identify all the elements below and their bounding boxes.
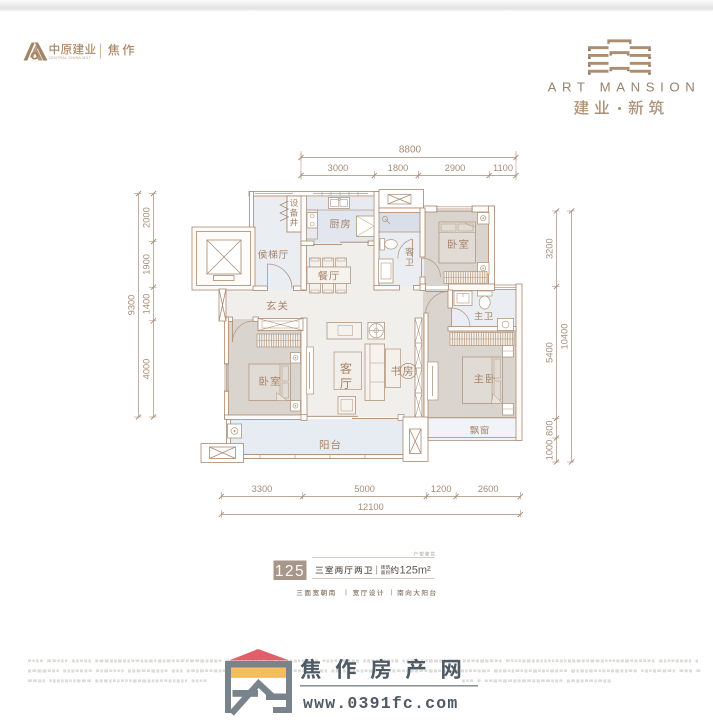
- svg-text:1100: 1100: [493, 163, 513, 173]
- svg-text:2600: 2600: [478, 484, 499, 494]
- svg-text:3200: 3200: [545, 238, 555, 259]
- svg-text:1800: 1800: [388, 163, 409, 173]
- svg-text:1200: 1200: [431, 484, 452, 494]
- svg-text:3300: 3300: [252, 484, 273, 494]
- svg-text:5000: 5000: [354, 484, 375, 494]
- svg-text:1900: 1900: [142, 254, 152, 275]
- svg-text:125: 125: [275, 563, 305, 580]
- svg-text:125m²: 125m²: [400, 564, 432, 576]
- svg-text:CENTRAL CHINA MGT: CENTRAL CHINA MGT: [49, 56, 92, 60]
- svg-text:www.0391fc.com: www.0391fc.com: [303, 694, 458, 713]
- svg-text:1000: 1000: [545, 440, 555, 461]
- svg-text:3000: 3000: [328, 163, 349, 173]
- svg-text:10400: 10400: [560, 324, 570, 350]
- svg-text:4000: 4000: [142, 359, 152, 380]
- svg-text:8800: 8800: [399, 145, 422, 156]
- svg-text:12100: 12100: [358, 502, 384, 512]
- svg-text:9300: 9300: [127, 295, 137, 316]
- svg-text:ART MANSION: ART MANSION: [548, 80, 701, 95]
- svg-text:2900: 2900: [445, 163, 466, 173]
- svg-text:800: 800: [545, 420, 555, 436]
- svg-text:2000: 2000: [142, 207, 152, 228]
- svg-text:5400: 5400: [545, 342, 555, 363]
- svg-text:1400: 1400: [142, 294, 152, 315]
